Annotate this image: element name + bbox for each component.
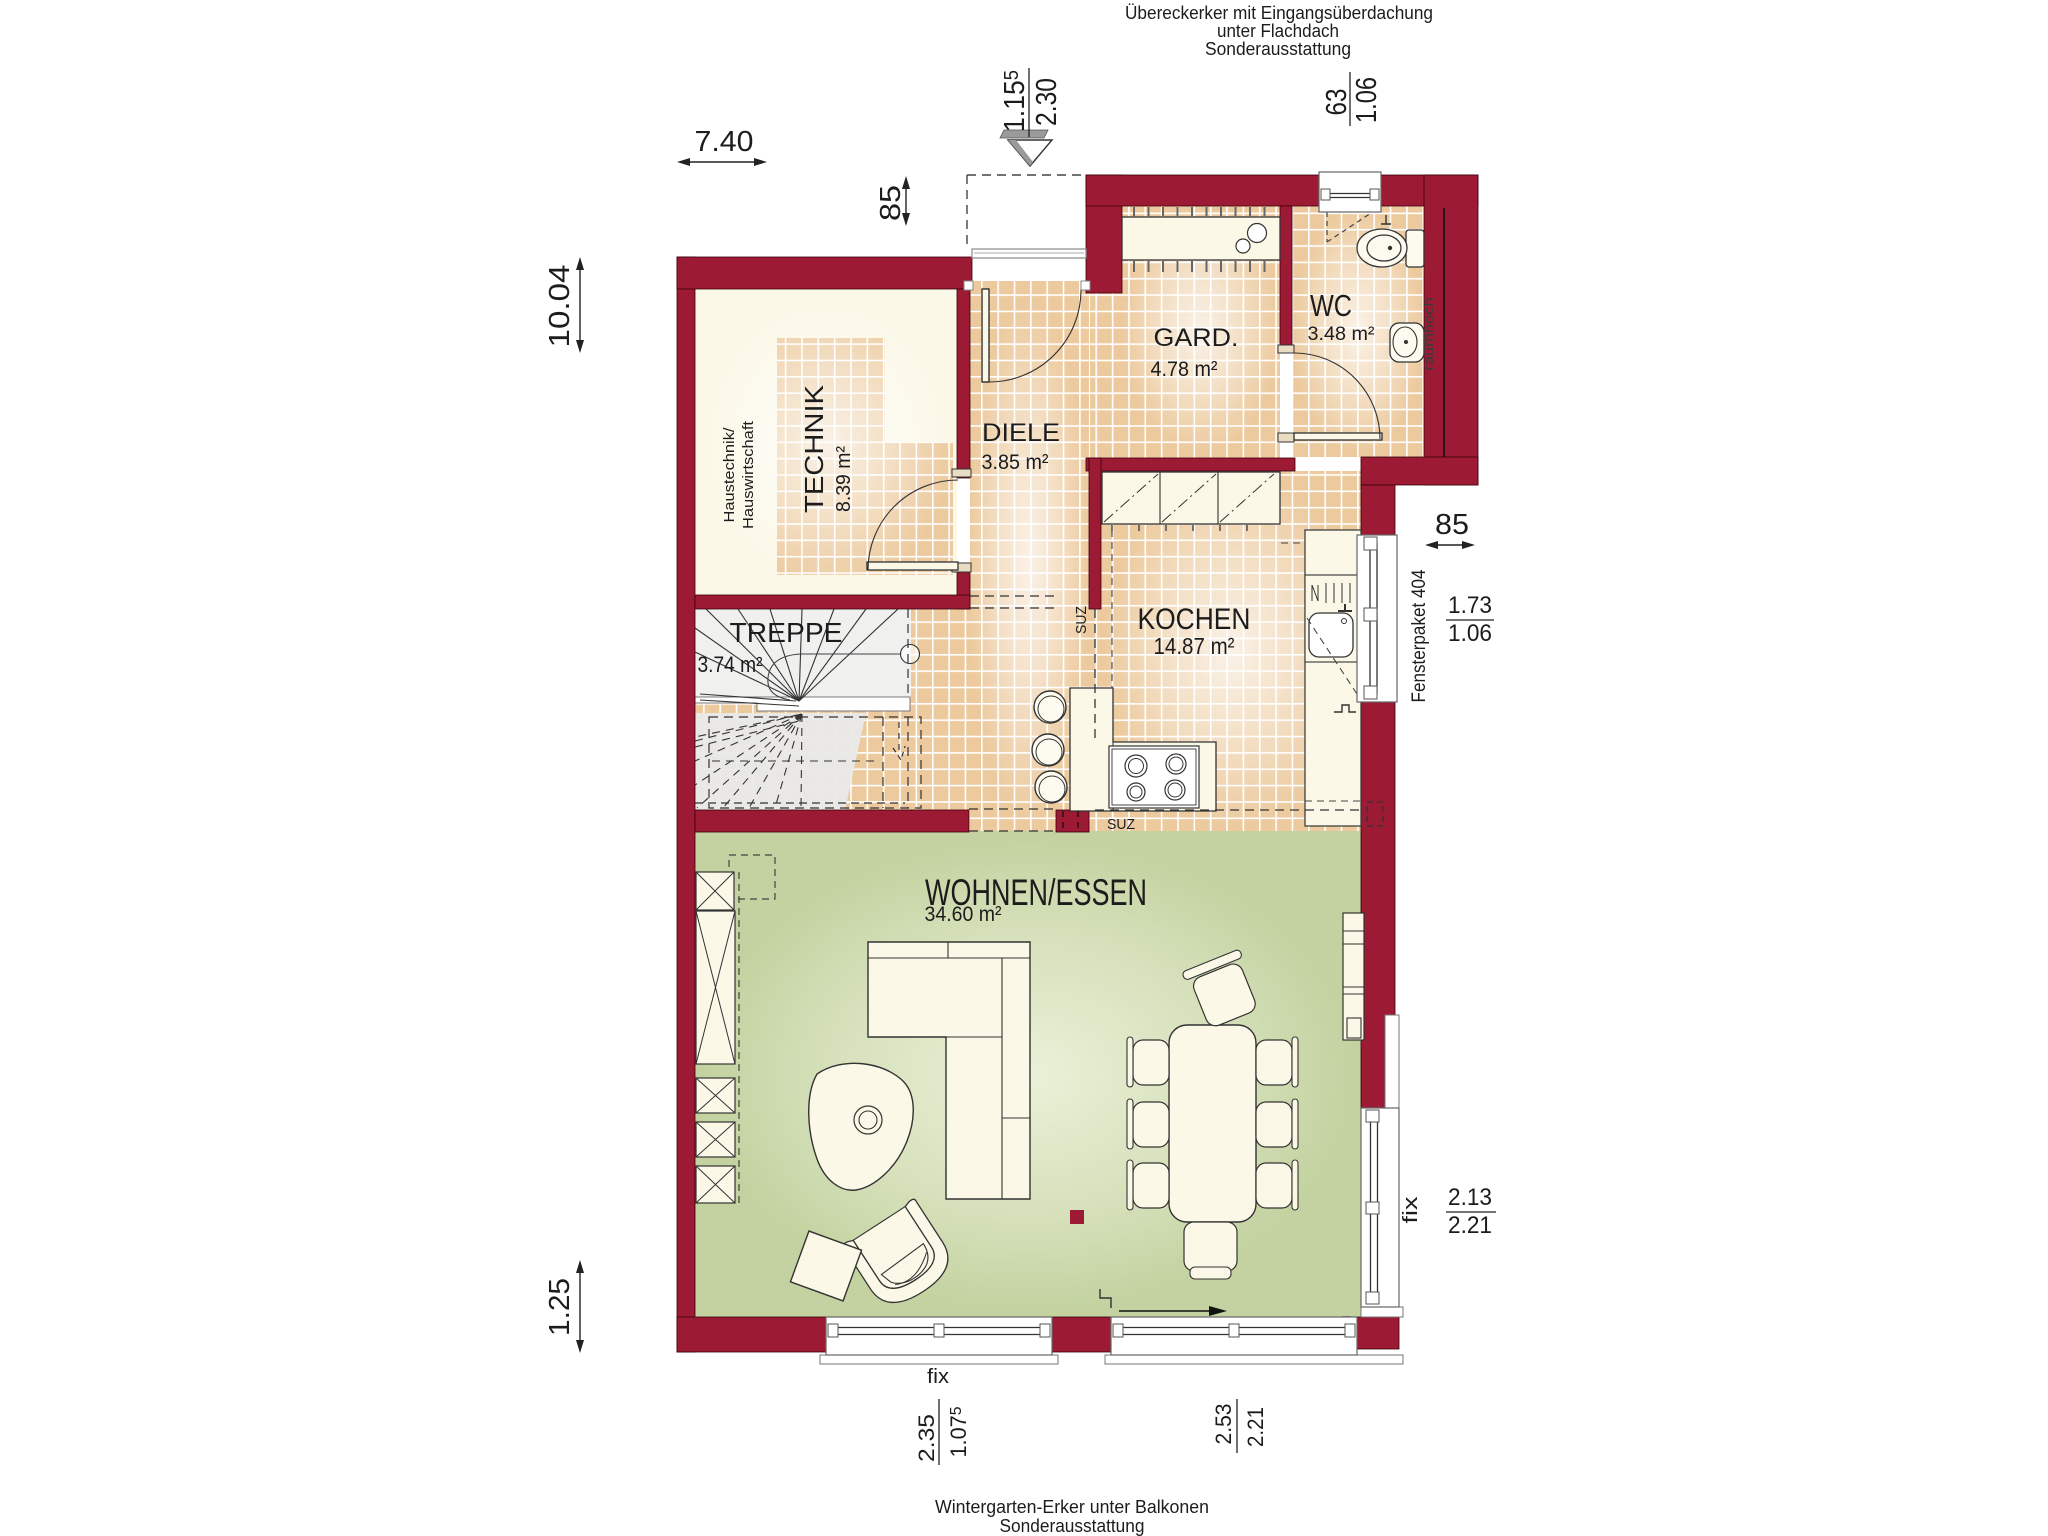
svg-text:SUZ: SUZ bbox=[1107, 816, 1135, 833]
svg-text:3.74 m²: 3.74 m² bbox=[698, 652, 763, 677]
svg-text:GARD.: GARD. bbox=[1154, 324, 1239, 352]
svg-text:8.39 m²: 8.39 m² bbox=[833, 446, 855, 512]
svg-text:14.87 m²: 14.87 m² bbox=[1154, 633, 1235, 659]
svg-text:SUZ: SUZ bbox=[1073, 606, 1090, 634]
svg-text:unter Flachdach: unter Flachdach bbox=[1217, 21, 1339, 41]
svg-text:63: 63 bbox=[1321, 89, 1353, 116]
svg-text:Hauswirtschaft: Hauswirtschaft bbox=[740, 420, 757, 529]
svg-text:Sonderausstattung: Sonderausstattung bbox=[1000, 1516, 1145, 1536]
svg-text:WC: WC bbox=[1310, 288, 1352, 323]
svg-text:1.075: 1.075 bbox=[946, 1406, 971, 1457]
svg-text:KOCHEN: KOCHEN bbox=[1138, 603, 1251, 636]
svg-text:85: 85 bbox=[1435, 509, 1469, 541]
svg-text:3.48 m²: 3.48 m² bbox=[1308, 324, 1375, 345]
svg-text:2.53: 2.53 bbox=[1211, 1404, 1236, 1445]
svg-text:TREPPE: TREPPE bbox=[730, 617, 843, 648]
svg-text:4.78 m²: 4.78 m² bbox=[1151, 358, 1218, 381]
svg-text:2.30: 2.30 bbox=[1031, 78, 1063, 126]
svg-text:Fensterpaket 404: Fensterpaket 404 bbox=[1409, 569, 1430, 702]
svg-text:Übereckerker mit Eingangsüberd: Übereckerker mit Eingangsüberdachung bbox=[1125, 3, 1433, 23]
svg-text:Wintergarten-Erker unter Balko: Wintergarten-Erker unter Balkonen bbox=[935, 1497, 1209, 1517]
svg-text:fix: fix bbox=[1400, 1197, 1422, 1224]
svg-text:Sonderausstattung: Sonderausstattung bbox=[1205, 39, 1351, 59]
svg-text:1.25: 1.25 bbox=[544, 1278, 576, 1336]
svg-text:DIELE: DIELE bbox=[982, 419, 1060, 447]
svg-text:2.35: 2.35 bbox=[914, 1414, 939, 1462]
svg-text:3.85 m²: 3.85 m² bbox=[982, 451, 1049, 474]
svg-text:1.06: 1.06 bbox=[1351, 77, 1383, 123]
svg-text:10.04: 10.04 bbox=[544, 265, 576, 348]
svg-text:85: 85 bbox=[875, 185, 907, 221]
svg-text:fix: fix bbox=[927, 1366, 949, 1388]
svg-text:7.40: 7.40 bbox=[695, 126, 754, 158]
svg-text:2.21: 2.21 bbox=[1243, 1407, 1268, 1447]
svg-text:1.06: 1.06 bbox=[1448, 620, 1492, 647]
svg-text:34.60 m²: 34.60 m² bbox=[925, 903, 1002, 926]
svg-text:TECHNIK: TECHNIK bbox=[799, 384, 829, 513]
svg-text:1.155: 1.155 bbox=[999, 70, 1031, 132]
svg-text:1.73: 1.73 bbox=[1448, 592, 1492, 619]
svg-text:2.21: 2.21 bbox=[1448, 1212, 1492, 1239]
svg-text:2.13: 2.13 bbox=[1448, 1184, 1492, 1211]
svg-text:Haustechnik/: Haustechnik/ bbox=[721, 427, 738, 523]
